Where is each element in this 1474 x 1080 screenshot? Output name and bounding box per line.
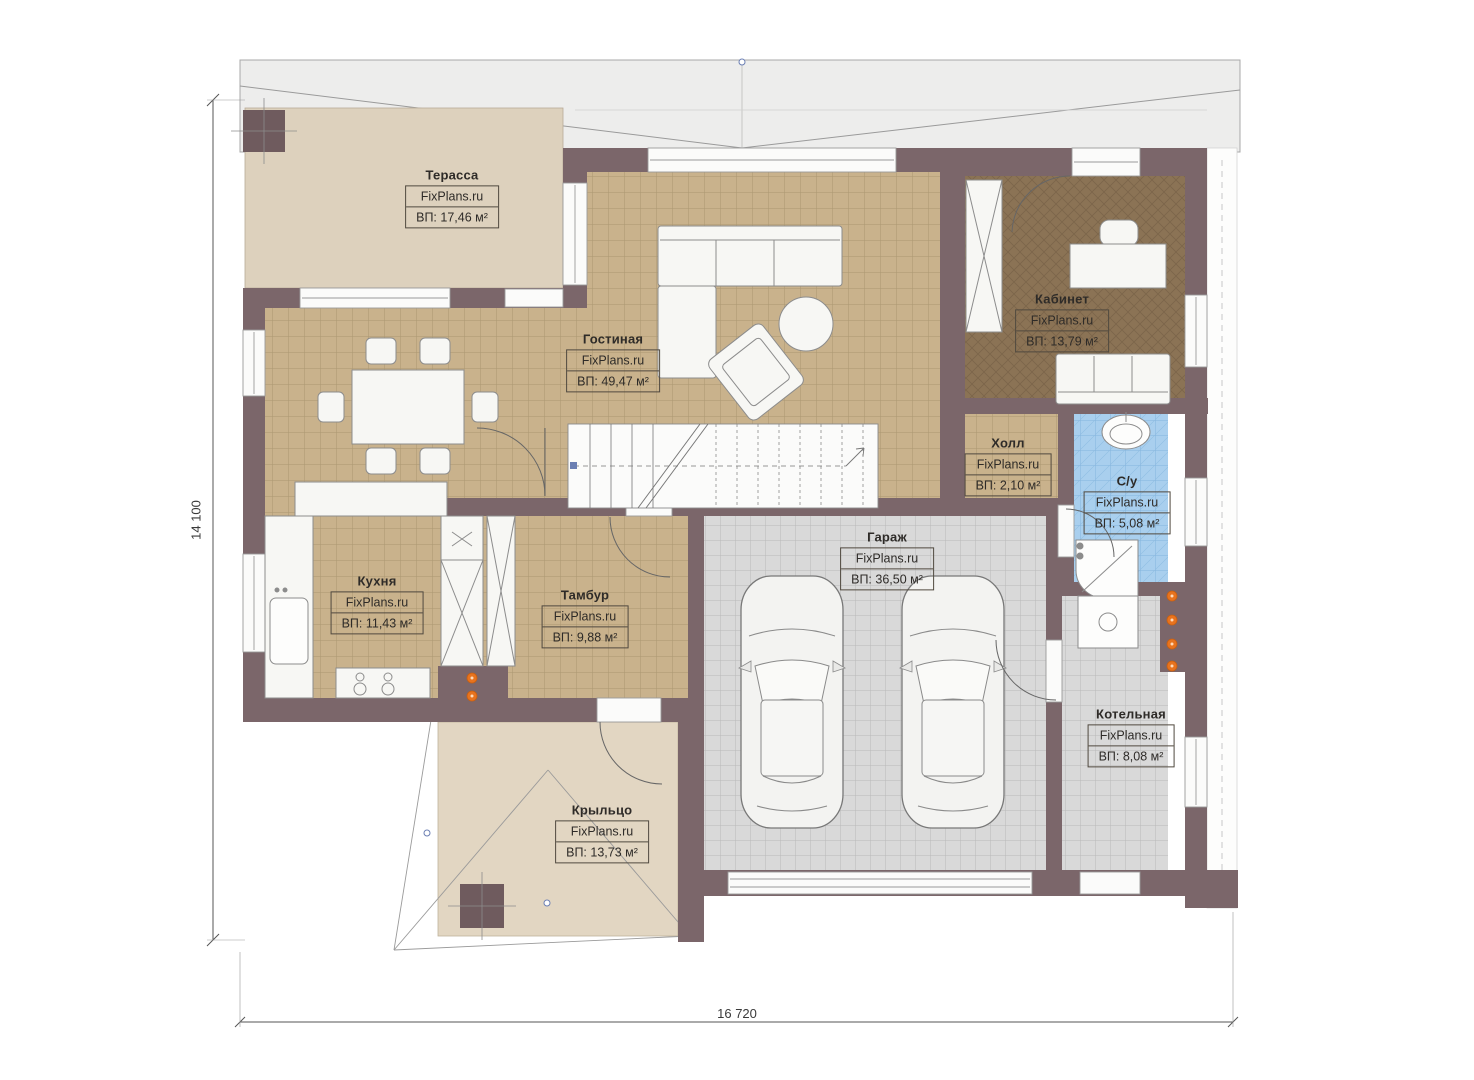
room-brand: FixPlans.ru — [406, 186, 498, 206]
room-area: ВП: 9,88 м² — [543, 627, 628, 648]
office-wardrobe — [966, 180, 1002, 332]
room-info-box: FixPlans.ru ВП: 5,08 м² — [1084, 491, 1171, 534]
boiler-unit — [1078, 596, 1138, 648]
room-area: ВП: 36,50 м² — [841, 569, 933, 590]
garage-gate — [728, 872, 1032, 894]
room-label-living: Гостиная FixPlans.ru ВП: 49,47 м² — [566, 331, 660, 392]
room-name: Гостиная — [566, 331, 660, 346]
room-brand: FixPlans.ru — [1089, 725, 1174, 745]
room-area: ВП: 2,10 м² — [966, 475, 1051, 496]
room-name: Кухня — [331, 573, 424, 588]
room-info-box: FixPlans.ru ВП: 49,47 м² — [566, 349, 660, 392]
room-brand: FixPlans.ru — [543, 606, 628, 626]
stove — [336, 668, 430, 698]
room-name: С/у — [1084, 473, 1171, 488]
room-info-box: FixPlans.ru ВП: 13,79 м² — [1015, 309, 1109, 352]
shower — [1076, 540, 1138, 598]
room-area: ВП: 13,73 м² — [556, 842, 648, 863]
room-label-vestibule: Тамбур FixPlans.ru ВП: 9,88 м² — [542, 587, 629, 648]
room-label-kitchen: Кухня FixPlans.ru ВП: 11,43 м² — [331, 573, 424, 634]
floor-plan-canvas: Терасса FixPlans.ru ВП: 17,46 м² Гостина… — [0, 0, 1474, 1080]
room-label-office: Кабинет FixPlans.ru ВП: 13,79 м² — [1015, 291, 1109, 352]
room-info-box: FixPlans.ru ВП: 36,50 м² — [840, 547, 934, 590]
office-sofa — [1056, 354, 1170, 404]
room-info-box: FixPlans.ru ВП: 13,73 м² — [555, 820, 649, 863]
room-brand: FixPlans.ru — [332, 592, 423, 612]
room-label-hall: Холл FixPlans.ru ВП: 2,10 м² — [965, 435, 1052, 496]
stairs — [568, 424, 878, 508]
room-area: ВП: 11,43 м² — [332, 613, 423, 634]
room-area: ВП: 13,79 м² — [1016, 331, 1108, 352]
room-info-box: FixPlans.ru ВП: 11,43 м² — [331, 591, 424, 634]
room-area: ВП: 49,47 м² — [567, 371, 659, 392]
room-label-garage: Гараж FixPlans.ru ВП: 36,50 м² — [840, 529, 934, 590]
room-area: ВП: 17,46 м² — [406, 207, 498, 228]
room-brand: FixPlans.ru — [556, 821, 648, 841]
room-info-box: FixPlans.ru ВП: 9,88 м² — [542, 605, 629, 648]
closet-1 — [441, 516, 483, 666]
closet-2 — [487, 516, 515, 666]
room-label-bathroom: С/у FixPlans.ru ВП: 5,08 м² — [1084, 473, 1171, 534]
kitchen-sink — [270, 598, 308, 664]
floor-plan-drawing — [0, 0, 1474, 1080]
room-label-porch: Крыльцо FixPlans.ru ВП: 13,73 м² — [555, 802, 649, 863]
coffee-table — [779, 297, 833, 351]
room-brand: FixPlans.ru — [567, 350, 659, 370]
room-name: Тамбур — [542, 587, 629, 602]
car-icon — [739, 576, 845, 828]
room-name: Терасса — [405, 167, 499, 182]
room-brand: FixPlans.ru — [1016, 310, 1108, 330]
room-name: Котельная — [1088, 706, 1175, 721]
floor-terrace — [245, 108, 563, 288]
room-brand: FixPlans.ru — [841, 548, 933, 568]
room-brand: FixPlans.ru — [966, 454, 1051, 474]
room-name: Крыльцо — [555, 802, 649, 817]
car-icon — [900, 576, 1006, 828]
room-area: ВП: 8,08 м² — [1089, 746, 1174, 767]
room-name: Холл — [965, 435, 1052, 450]
room-label-boiler: Котельная FixPlans.ru ВП: 8,08 м² — [1088, 706, 1175, 767]
room-brand: FixPlans.ru — [1085, 492, 1170, 512]
room-name: Гараж — [840, 529, 934, 544]
room-info-box: FixPlans.ru ВП: 17,46 м² — [405, 185, 499, 228]
room-area: ВП: 5,08 м² — [1085, 513, 1170, 534]
dimension-width-label: 16 720 — [717, 1006, 757, 1021]
dimension-height-label: 14 100 — [189, 500, 204, 540]
room-info-box: FixPlans.ru ВП: 2,10 м² — [965, 453, 1052, 496]
room-name: Кабинет — [1015, 291, 1109, 306]
room-label-terrace: Терасса FixPlans.ru ВП: 17,46 м² — [405, 167, 499, 228]
room-info-box: FixPlans.ru ВП: 8,08 м² — [1088, 724, 1175, 767]
